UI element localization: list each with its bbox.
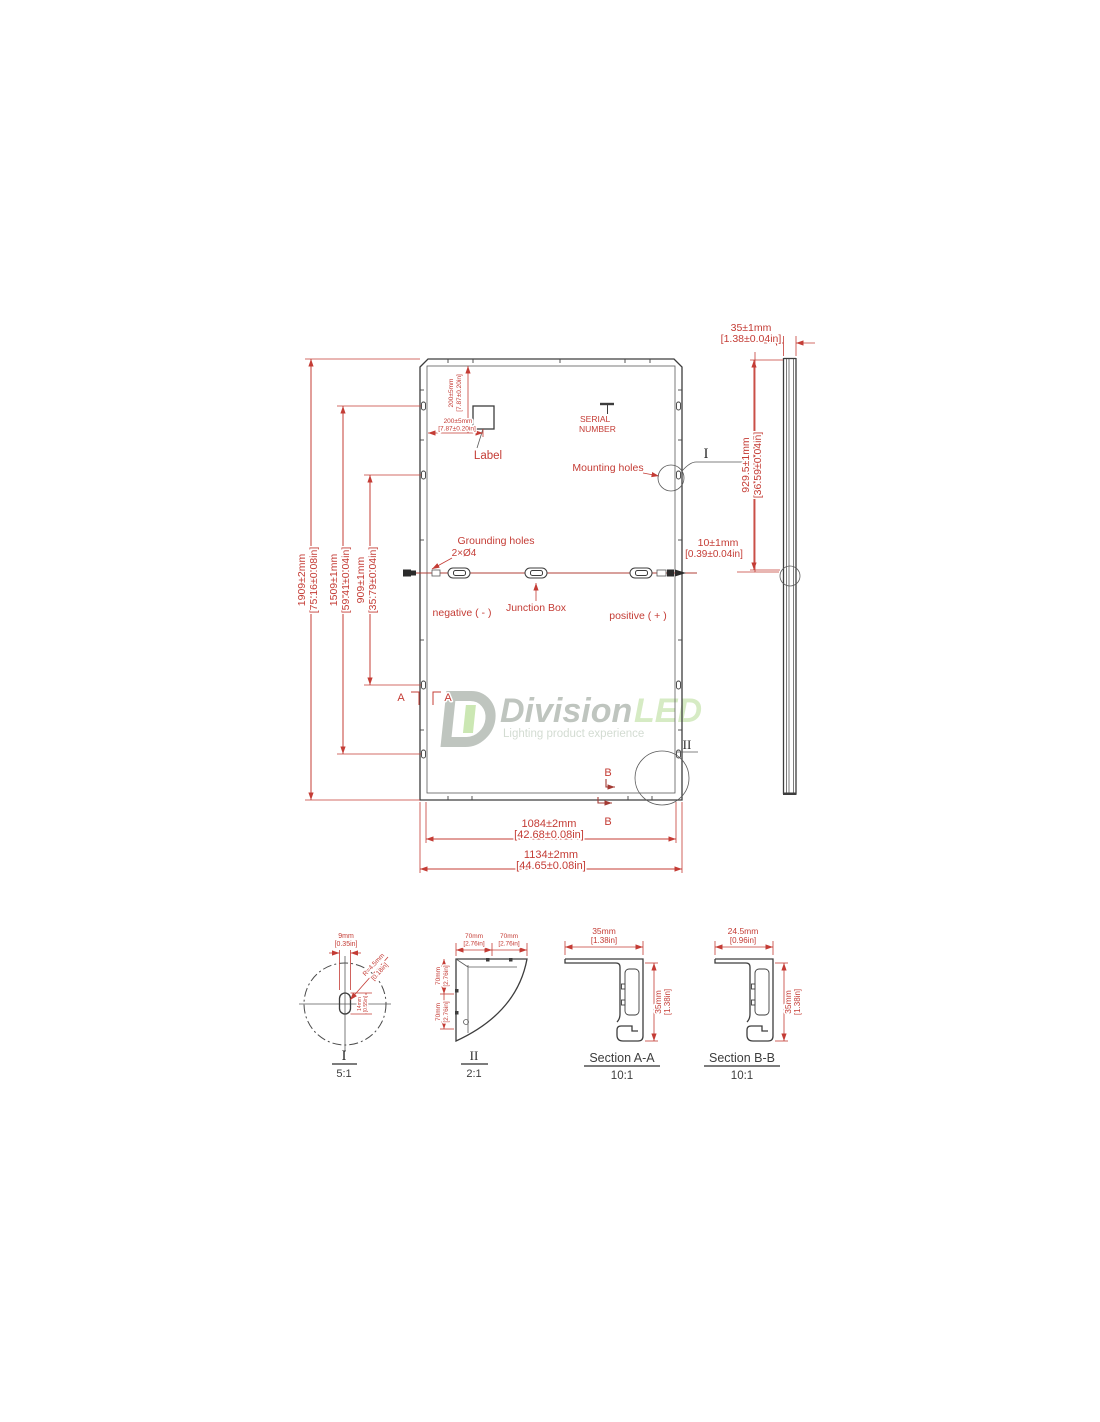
section-bb-height-mm: 35mm: [783, 990, 793, 1014]
watermark-tagline: Lighting product experience: [503, 728, 644, 740]
section-aa-width-mm: 35mm: [592, 926, 616, 936]
label-dim-v-mm: 200±5mm: [448, 379, 455, 408]
serial-text-2: NUMBER: [579, 424, 616, 434]
detail-ii-h1-mm: 70mm: [465, 933, 483, 940]
section-bb-title: Section B-B: [709, 1051, 775, 1065]
marker-i-numeral: I: [704, 446, 709, 462]
rear-view: Label 200±5mm [7.87±0.20in] 200±5mm [7.8…: [296, 352, 779, 873]
label-leader: [477, 429, 483, 448]
section-aa-scale: 10:1: [611, 1070, 633, 1082]
detail-ii-scale: 2:1: [466, 1068, 481, 1080]
section-aa-title: Section A-A: [589, 1051, 655, 1065]
dim-1509-mm: 1509±1mm: [328, 554, 340, 607]
mounting-holes-arrow: [643, 473, 659, 476]
section-bb-profile: [715, 959, 773, 1041]
detail-i-width-in: [0.35in]: [335, 941, 358, 948]
dim-1509-in: [59.41±0.04in]: [340, 547, 352, 614]
section-bb-width-in: [0.96in]: [730, 936, 756, 945]
dim-929-mm: 929.5±1mm: [740, 437, 752, 493]
grounding-holes-text-1: Grounding holes: [457, 535, 534, 547]
label-dim-h-mm: 200±5mm: [444, 418, 473, 425]
detail-ii-v1-mm: 70mm: [435, 967, 442, 985]
grounding-holes-text-2: 2×Ø4: [452, 548, 477, 559]
connector-plug-right-tip: [675, 570, 686, 577]
solar-panel-dimension-drawing: Division LED Lighting product experience: [0, 0, 1100, 1422]
dim-10-mm: 10±1mm: [698, 537, 739, 549]
section-bb-height-in: [1.38in]: [793, 989, 802, 1015]
detail-i-length-in: [0.55in]: [363, 995, 369, 1012]
side-view-bottom-cap: [783, 793, 797, 796]
dim-909-in: [35.79±0.04in]: [367, 547, 379, 614]
dim-thickness-in: [1.38±0.04in]: [721, 333, 782, 345]
marker-b-bottom: B: [604, 816, 611, 828]
detail-ii-v1-in: [2.76in]: [443, 965, 450, 987]
detail-ii-bubble: [635, 751, 689, 805]
mounting-holes-text: Mounting holes: [572, 462, 643, 474]
detail-i-title: I: [342, 1048, 347, 1064]
connector-plug-left-outer: [403, 570, 411, 577]
detail-i: 9mm [0.35in] R=4.5mm [0.18in] 14mm [0.55…: [299, 933, 391, 1080]
detail-i-scale: 5:1: [336, 1068, 351, 1080]
dim-1909-in: [75.16±0.08in]: [308, 547, 320, 614]
section-a-mark-left: [411, 692, 419, 705]
connector-plug-left-inner: [411, 571, 416, 576]
serial-text-1: SERIAL: [580, 414, 611, 424]
dim-1134-in: [44.65±0.08in]: [516, 860, 586, 872]
watermark-logo: Division LED Lighting product experience: [446, 692, 702, 742]
section-bb-scale: 10:1: [731, 1070, 753, 1082]
marker-a-right: A: [444, 692, 452, 704]
grounding-holes-arrow: [432, 558, 452, 569]
technical-drawing-page: Division LED Lighting product experience: [0, 0, 1100, 1422]
marker-ii-numeral: II: [683, 737, 692, 752]
dim-909-mm: 909±1mm: [355, 556, 367, 603]
junction-box-left-detail: [454, 571, 466, 576]
section-b-mark-top: [606, 779, 615, 787]
junction-box-label: Junction Box: [506, 602, 567, 614]
connector-coupler-right: [657, 570, 666, 576]
junction-box-center-detail: [531, 571, 543, 576]
connector-plug-right-inner: [667, 570, 674, 577]
detail-ii-h2-in: [2.76in]: [498, 941, 520, 948]
serial-number-mark: [600, 404, 614, 414]
detail-ii: 70mm [2.76in] 70mm [2.76in] 70mm [2.76in…: [435, 933, 527, 1080]
label-dim-v-in: [7.87±0.20in]: [456, 374, 463, 412]
dim-929-in: [36.59±0.04in]: [752, 432, 764, 499]
connector-coupler-left: [432, 570, 440, 576]
section-aa-profile: [565, 959, 643, 1041]
section-aa-width-in: [1.38in]: [591, 936, 617, 945]
label-text: Label: [474, 450, 502, 462]
detail-i-width-mm: 9mm: [338, 933, 354, 940]
positive-label: positive ( + ): [609, 610, 666, 622]
negative-label: negative ( - ): [433, 607, 492, 619]
marker-a-left: A: [397, 692, 405, 704]
detail-ii-corner-key: [456, 959, 527, 1041]
detail-ii-title: II: [470, 1048, 479, 1063]
section-aa-height-in: [1.38in]: [663, 989, 672, 1015]
watermark-logo-mark-green: [468, 705, 471, 733]
detail-ii-h1-in: [2.76in]: [463, 941, 485, 948]
junction-box-assembly: [403, 568, 697, 578]
detail-ii-v2-in: [2.76in]: [443, 1001, 450, 1023]
detail-ii-v2-mm: 70mm: [435, 1003, 442, 1021]
marker-b-top: B: [604, 767, 611, 779]
section-aa-height-mm: 35mm: [653, 990, 663, 1014]
dim-10-in: [0.39±0.04in]: [685, 549, 743, 560]
detail-ii-h2-mm: 70mm: [500, 933, 518, 940]
section-aa: 35mm [1.38in] 35mm [1.38in] Section A-A …: [565, 926, 672, 1082]
section-a-mark-right: [433, 692, 441, 705]
watermark-brand-division: Division: [500, 692, 632, 730]
junction-box-right-detail: [636, 571, 648, 576]
dim-1909-mm: 1909±2mm: [296, 554, 308, 607]
label-dim-h-in: [7.87±0.20in]: [438, 426, 476, 433]
detail-i-leader: [682, 462, 744, 471]
dim-1084-in: [42.68±0.08in]: [514, 829, 584, 841]
section-bb: 24.5mm [0.96in] 35mm [1.38in] Section B-…: [704, 926, 802, 1082]
watermark-brand-led: LED: [634, 692, 702, 730]
label-square: [473, 406, 494, 429]
section-bb-width-mm: 24.5mm: [728, 926, 759, 936]
